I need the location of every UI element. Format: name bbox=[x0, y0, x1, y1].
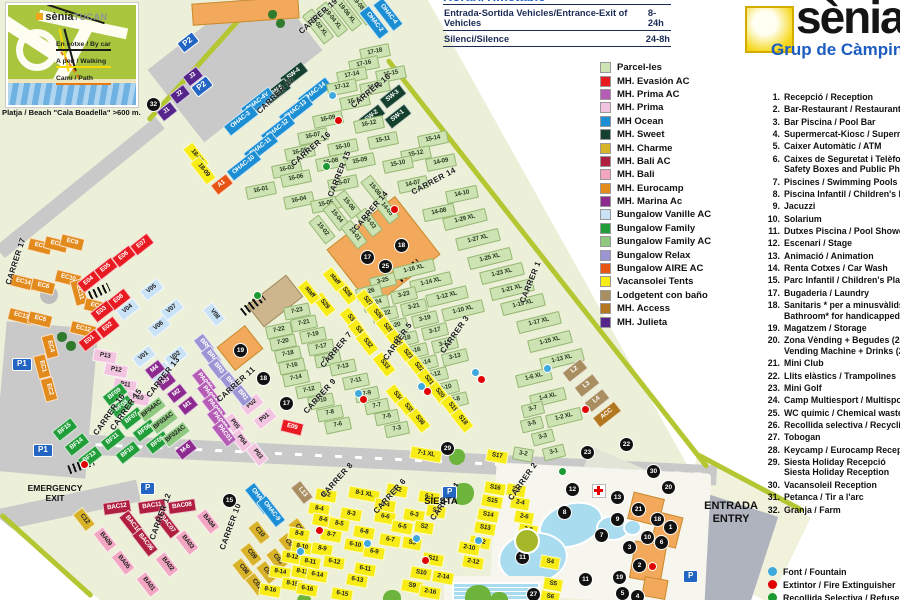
facility-marker-5: 5 bbox=[615, 586, 630, 600]
legend-swatch bbox=[600, 263, 611, 274]
map-plot-1-17-xl: 1-17 XL bbox=[516, 311, 562, 334]
legend-item: MH. Marina Ac bbox=[600, 195, 711, 208]
fountain-dot bbox=[328, 91, 337, 100]
facility-marker-2: 2 bbox=[632, 558, 647, 573]
facility-text: Recollida selectiva / Recycling bbox=[784, 420, 900, 431]
facility-number: 23. bbox=[765, 383, 780, 394]
facility-line: Animació / Animation bbox=[784, 251, 874, 262]
facility-line-2: Siesta Holiday Reception bbox=[784, 467, 889, 478]
legend-item: MH. Charme bbox=[600, 141, 711, 154]
facility-line: Escenari / Stage bbox=[784, 238, 852, 249]
area-label-entrada: ENTRADA ENTRY bbox=[694, 500, 768, 525]
map-plot-15-11: 15-11 bbox=[367, 131, 399, 150]
facility-item: 7.Piscines / Swimming Pools bbox=[765, 177, 900, 188]
legend-label: MH. Evasión AC bbox=[617, 76, 690, 87]
facility-text: Tobogan bbox=[784, 432, 820, 443]
map-symbols-legend: Font / FountainExtintor / Fire Extinguis… bbox=[768, 565, 900, 600]
tucan-logo-icon bbox=[36, 13, 43, 20]
tree-icon bbox=[383, 590, 401, 600]
facility-marker-22: 22 bbox=[619, 437, 634, 452]
legend-item: MH. Prima bbox=[600, 101, 711, 114]
facility-item: 8.Piscina Infantil / Children's Pool bbox=[765, 189, 900, 200]
tucan-logo-suffix: TUCAN bbox=[74, 12, 108, 22]
facility-number: 20. bbox=[765, 335, 780, 356]
legend-swatch bbox=[600, 129, 611, 140]
facility-text: Camp Multiesport / Multisports Field bbox=[784, 395, 900, 406]
legend-label: Parcel-les bbox=[617, 62, 662, 73]
legend-item: MH. Bali AC bbox=[600, 155, 711, 168]
facility-line: Caixer Automàtic / ATM bbox=[784, 141, 881, 152]
facility-text: Mini Golf bbox=[784, 383, 822, 394]
map-plot-6-5: 6-5 bbox=[390, 519, 414, 536]
facility-line-2: Bathroom* for handicapped people bbox=[784, 311, 900, 322]
facility-item: 24.Camp Multiesport / Multisports Field bbox=[765, 395, 900, 406]
map-plot-j2: J2 bbox=[169, 84, 191, 105]
facility-number: 21. bbox=[765, 358, 780, 369]
inset-roundabout bbox=[16, 29, 58, 71]
facility-text: Sanitaris * per a minusvàlidsBathroom* f… bbox=[784, 300, 900, 321]
facility-item: 15.Parc Infantil / Children's Playground bbox=[765, 275, 900, 286]
facility-text: Siesta Holiday RecepcióSiesta Holiday Re… bbox=[784, 457, 889, 478]
legend-item: MH. Julieta bbox=[600, 315, 711, 328]
facility-item: 23.Mini Golf bbox=[765, 383, 900, 394]
building bbox=[641, 576, 668, 600]
facility-line: Tobogan bbox=[784, 432, 820, 443]
beach-distance-caption: Platja / Beach "Cala Boadella" >600 m. bbox=[2, 108, 152, 117]
facility-text: Animació / Animation bbox=[784, 251, 874, 262]
legend-label: MH Ocean bbox=[617, 116, 663, 127]
map-plot-8-16: 8-16 bbox=[258, 582, 282, 599]
legend-label: MH. Prima bbox=[617, 102, 663, 113]
facility-number: 26. bbox=[765, 420, 780, 431]
map-plot-2-16: 2-16 bbox=[418, 584, 442, 600]
facility-text: Supermercat-Kiosc / Supermarket-Press bbox=[784, 129, 900, 140]
inset-legend-item: Camí / Path bbox=[56, 75, 111, 85]
facility-item: 21.Mini Club bbox=[765, 358, 900, 369]
facility-text: Granja / Farm bbox=[784, 505, 841, 516]
map-plot-e09: E09 bbox=[280, 419, 304, 437]
legend-swatch bbox=[600, 303, 611, 314]
facility-marker-18: 18 bbox=[394, 238, 409, 253]
facility-item: 31.Petanca / Tir a l'arc bbox=[765, 492, 900, 503]
legend-item: Bungalow Family AC bbox=[600, 235, 711, 248]
map-plot-v08: V08 bbox=[202, 302, 226, 327]
tree-icon bbox=[57, 332, 67, 342]
legend-label: Bungalow Family AC bbox=[617, 236, 711, 247]
map-plot-6-13: 6-13 bbox=[345, 572, 369, 589]
facility-marker-3: 3 bbox=[622, 540, 637, 555]
facility-line: Solarium bbox=[784, 214, 822, 225]
facility-item: 9.Jacuzzi bbox=[765, 201, 900, 212]
map-plot-ba01: BA01 bbox=[135, 571, 160, 598]
facility-marker-8: 8 bbox=[557, 505, 572, 520]
facility-line: Petanca / Tir a l'arc bbox=[784, 492, 864, 503]
map-plot-c12: C12 bbox=[72, 507, 96, 532]
inset-logo: sèniaTUCAN bbox=[8, 7, 136, 25]
facility-item: 25.WC químic / Chemical waste bbox=[765, 408, 900, 419]
facility-number: 24. bbox=[765, 395, 780, 406]
legend-label: MH. Prima AC bbox=[617, 89, 679, 100]
facility-line: Piscina Infantil / Children's Pool bbox=[784, 189, 900, 200]
fire-extinguisher-dot bbox=[359, 395, 368, 404]
symbol-label: Font / Fountain bbox=[783, 567, 847, 577]
facility-line: Caixes de Seguretat i Telèfon bbox=[784, 154, 900, 165]
facility-item: 1.Recepció / Reception bbox=[765, 92, 900, 103]
facility-item: 22.Llits elàstics / Trampolines bbox=[765, 371, 900, 382]
facility-number: 2. bbox=[765, 104, 780, 115]
facility-marker-21: 21 bbox=[631, 502, 646, 517]
facility-line-2: Vending Machine + Drinks (24h) bbox=[784, 346, 900, 357]
legend-swatch bbox=[600, 62, 611, 73]
legend-item: Bungalow Vanille AC bbox=[600, 208, 711, 221]
map-plot-s32: S32 bbox=[354, 330, 379, 357]
map-plot-3-7: 3-7 bbox=[521, 401, 545, 419]
facility-marker-7: 7 bbox=[594, 528, 609, 543]
map-plot-15-10: 15-10 bbox=[382, 155, 414, 174]
map-plot-14-10: 14-10 bbox=[445, 185, 479, 204]
facility-text: Bar Piscina / Pool Bar bbox=[784, 117, 875, 128]
symbol-label: Extintor / Fire Extinguisher bbox=[783, 580, 895, 590]
facility-number: 10. bbox=[765, 214, 780, 225]
facility-item: 4.Supermercat-Kiosc / Supermarket-Press bbox=[765, 129, 900, 140]
facility-item: 19.Magatzem / Storage bbox=[765, 323, 900, 334]
facility-item: 11.Dutxes Piscina / Pool Showers bbox=[765, 226, 900, 237]
symbol-dot bbox=[768, 580, 777, 589]
facility-number: 9. bbox=[765, 201, 780, 212]
facility-line: Renta Cotxes / Car Wash bbox=[784, 263, 888, 274]
legend-swatch bbox=[600, 116, 611, 127]
inset-legend-line bbox=[56, 49, 111, 51]
area-label-siesta: SIESTA bbox=[418, 497, 464, 508]
legend-label: Vacansolei Tents bbox=[617, 276, 693, 287]
area-label-emergency: EMERGENCY EXIT bbox=[24, 484, 86, 504]
map-plot-6-12: 6-12 bbox=[322, 554, 346, 571]
inset-legend-line bbox=[56, 83, 111, 85]
legend-item: Vacansolei Tents bbox=[600, 275, 711, 288]
inset-legend-label: A peu / Walking bbox=[56, 58, 111, 65]
map-plot-s17: S17 bbox=[485, 448, 509, 465]
map-plot-p03: P03 bbox=[245, 442, 269, 467]
facility-item: 3.Bar Piscina / Pool Bar bbox=[765, 117, 900, 128]
facility-number: 13. bbox=[765, 251, 780, 262]
facility-marker-25: 25 bbox=[378, 259, 393, 274]
map-plot-ba09: BA09 bbox=[92, 526, 117, 553]
facility-line: Mini Club bbox=[784, 358, 824, 369]
facility-item: 13.Animació / Animation bbox=[765, 251, 900, 262]
legend-swatch bbox=[600, 209, 611, 220]
pool-island bbox=[514, 528, 540, 554]
legend-label: MH. Julieta bbox=[617, 317, 667, 328]
symbol-item: Recollida Selectiva / Refuse Collection bbox=[768, 591, 900, 600]
facility-line: Bar-Restaurant / Restaurant-Bar bbox=[784, 104, 900, 115]
map-plot-ba03: BA03 bbox=[174, 529, 199, 556]
legend-item: MH. Bali bbox=[600, 168, 711, 181]
legend-swatch bbox=[600, 290, 611, 301]
first-aid-icon bbox=[592, 484, 606, 498]
facility-number: 12. bbox=[765, 238, 780, 249]
facility-number: 28. bbox=[765, 445, 780, 456]
facility-item: 5.Caixer Automàtic / ATM bbox=[765, 141, 900, 152]
facility-text: Caixer Automàtic / ATM bbox=[784, 141, 881, 152]
map-plot-1-27-xl: 1-27 XL bbox=[455, 228, 501, 251]
map-plot-2-14: 2-14 bbox=[431, 569, 455, 586]
inset-legend-item: A peu / Walking bbox=[56, 58, 111, 68]
legend-label: Lodgetent con baño bbox=[617, 290, 708, 301]
facility-line: WC químic / Chemical waste bbox=[784, 408, 900, 419]
legend-label: MH. Sweet bbox=[617, 129, 665, 140]
map-plot-c10: C10 bbox=[247, 520, 271, 545]
facility-text: Zona Vènding + Begudes (24h)Vending Mach… bbox=[784, 335, 900, 356]
facility-item: 10.Solarium bbox=[765, 214, 900, 225]
facility-line: Siesta Holiday Recepció bbox=[784, 457, 889, 468]
legend-swatch bbox=[600, 276, 611, 287]
facility-item: 27.Tobogan bbox=[765, 432, 900, 443]
map-plot-s4: S4 bbox=[539, 554, 561, 570]
tree-icon bbox=[490, 592, 508, 600]
legend-label: MH. Charme bbox=[617, 143, 672, 154]
facility-item: 30.Vacansoleil Reception bbox=[765, 480, 900, 491]
legend-item: Bungalow Relax bbox=[600, 248, 711, 261]
parking-badge-p: P bbox=[683, 570, 698, 583]
facility-marker-10: 10 bbox=[640, 530, 655, 545]
timetable-row: Silenci/Silence24-8h bbox=[443, 31, 671, 47]
facility-number: 31. bbox=[765, 492, 780, 503]
timetable-row-label: Silenci/Silence bbox=[444, 34, 509, 44]
legend-label: Bungalow Relax bbox=[617, 250, 690, 261]
facility-text: Keycamp / Eurocamp Recepció bbox=[784, 445, 900, 456]
map-plot-bf10: BF10 bbox=[115, 440, 142, 465]
facility-number: 1. bbox=[765, 92, 780, 103]
legend-label: Bungalow Family bbox=[617, 223, 695, 234]
facility-line: Zona Vènding + Begudes (24h) bbox=[784, 335, 900, 346]
facility-line: Jacuzzi bbox=[784, 201, 815, 212]
fire-extinguisher-dot bbox=[421, 556, 430, 565]
fountain-dot bbox=[412, 534, 421, 543]
facility-number: 17. bbox=[765, 288, 780, 299]
tree-icon bbox=[276, 19, 285, 28]
facility-marker-30: 30 bbox=[646, 464, 661, 479]
legend-swatch bbox=[600, 169, 611, 180]
facility-item: 12.Escenari / Stage bbox=[765, 238, 900, 249]
facility-number: 15. bbox=[765, 275, 780, 286]
symbol-item: Extintor / Fire Extinguisher bbox=[768, 578, 900, 591]
timetable: Horari/Timetable Entrada-Sortida Vehicle… bbox=[443, 0, 671, 47]
map-plot-16-01: 16-01 bbox=[245, 181, 277, 200]
facility-line: Recollida selectiva / Recycling bbox=[784, 420, 900, 431]
facility-number: 22. bbox=[765, 371, 780, 382]
symbol-dot bbox=[768, 567, 777, 576]
facility-item: 2.Bar-Restaurant / Restaurant-Bar bbox=[765, 104, 900, 115]
map-plot-6-15: 6-15 bbox=[330, 586, 354, 600]
facility-item: 32.Granja / Farm bbox=[765, 505, 900, 516]
facility-number: 8. bbox=[765, 189, 780, 200]
facility-item: 17.Bugaderia / Laundry bbox=[765, 288, 900, 299]
fountain-dot bbox=[296, 547, 305, 556]
facility-line: Bar Piscina / Pool Bar bbox=[784, 117, 875, 128]
inset-legend-item: En cotxe / By car bbox=[56, 41, 111, 51]
map-plot-bac08: BAC08 bbox=[167, 498, 197, 515]
fire-extinguisher-dot bbox=[80, 460, 89, 469]
inset-legend-label: En cotxe / By car bbox=[56, 41, 111, 48]
facility-item: 18.Sanitaris * per a minusvàlidsBathroom… bbox=[765, 300, 900, 321]
facility-item: 20.Zona Vènding + Begudes (24h)Vending M… bbox=[765, 335, 900, 356]
facility-marker-9: 9 bbox=[610, 512, 625, 527]
legend-item: MH Ocean bbox=[600, 115, 711, 128]
tree-icon bbox=[465, 585, 491, 600]
legend-item: Parcel-les bbox=[600, 61, 711, 74]
brand-name: sènia bbox=[796, 0, 900, 44]
legend-item: MH. Eurocamp bbox=[600, 182, 711, 195]
facility-text: Escenari / Stage bbox=[784, 238, 852, 249]
facility-text: Parc Infantil / Children's Playground bbox=[784, 275, 900, 286]
symbol-label: Recollida Selectiva / Refuse Collection bbox=[783, 593, 900, 600]
facility-number: 32. bbox=[765, 505, 780, 516]
facility-item: 6.Caixes de Seguretat i TelèfonSafety Bo… bbox=[765, 154, 900, 175]
legend-label: MH. Bali bbox=[617, 169, 654, 180]
facility-line: Vacansoleil Reception bbox=[784, 480, 877, 491]
map-plot-ec2: EC2 bbox=[40, 376, 59, 403]
facility-number: 6. bbox=[765, 154, 780, 175]
facility-line: Piscines / Swimming Pools bbox=[784, 177, 897, 188]
map-plot-ba04: BA04 bbox=[195, 508, 220, 535]
legend-label: MH. Bali AC bbox=[617, 156, 670, 167]
facility-number: 27. bbox=[765, 432, 780, 443]
facility-number: 4. bbox=[765, 129, 780, 140]
fountain-dot bbox=[363, 539, 372, 548]
street-label: CARRER 10 bbox=[218, 502, 243, 551]
legend-label: MH. Access bbox=[617, 303, 670, 314]
legend-item: Lodgetent con baño bbox=[600, 289, 711, 302]
brand-subtitle: Grup de Càmpings bbox=[771, 40, 900, 60]
facility-text: Vacansoleil Reception bbox=[784, 480, 877, 491]
facility-item: 26.Recollida selectiva / Recycling bbox=[765, 420, 900, 431]
facility-number: 25. bbox=[765, 408, 780, 419]
legend-item: MH. Sweet bbox=[600, 128, 711, 141]
fire-extinguisher-dot bbox=[390, 205, 399, 214]
facility-number: 14. bbox=[765, 263, 780, 274]
fountain-dot bbox=[474, 536, 483, 545]
facility-text: Caixes de Seguretat i TelèfonSafety Boxe… bbox=[784, 154, 900, 175]
facility-line: Parc Infantil / Children's Playground bbox=[784, 275, 900, 286]
facility-text: Bar-Restaurant / Restaurant-Bar bbox=[784, 104, 900, 115]
map-plot-p01: P01 bbox=[252, 407, 277, 431]
timetable-row-value: 24-8h bbox=[646, 34, 670, 44]
facilities-list: 1.Recepció / Reception2.Bar-Restaurant /… bbox=[765, 92, 900, 517]
fire-extinguisher-dot bbox=[477, 375, 486, 384]
legend-label: Bungalow Vanille AC bbox=[617, 209, 711, 220]
map-plot-3-1: 3-1 bbox=[542, 444, 566, 462]
facility-text: Mini Club bbox=[784, 358, 824, 369]
facility-line: Magatzem / Storage bbox=[784, 323, 867, 334]
map-plot-ec6: EC6 bbox=[30, 277, 56, 295]
parking-badge-p: P bbox=[140, 482, 155, 495]
facility-marker-15: 15 bbox=[222, 493, 237, 508]
timetable-row: Entrada-Sortida Vehicles/Entrance-Exit o… bbox=[443, 4, 671, 31]
facility-number: 11. bbox=[765, 226, 780, 237]
recycling-dot bbox=[253, 291, 262, 300]
recycling-dot bbox=[558, 467, 567, 476]
facility-number: 3. bbox=[765, 117, 780, 128]
legend-swatch bbox=[600, 156, 611, 167]
legend-item: Bungalow Family bbox=[600, 222, 711, 235]
facility-item: 28.Keycamp / Eurocamp Recepció bbox=[765, 445, 900, 456]
symbol-item: Font / Fountain bbox=[768, 565, 900, 578]
accommodation-legend: Parcel-lesMH. Evasión ACMH. Prima ACMH. … bbox=[600, 61, 711, 329]
timetable-row-value: 8-24h bbox=[648, 8, 670, 28]
parking-badge-p1: P1 bbox=[12, 358, 32, 371]
fire-extinguisher-dot bbox=[334, 116, 343, 125]
facility-marker-19: 19 bbox=[612, 570, 627, 585]
map-plot-3-3: 3-3 bbox=[531, 429, 555, 447]
symbol-dot bbox=[768, 593, 777, 600]
facility-marker-27: 27 bbox=[526, 587, 541, 600]
facility-item: 14.Renta Cotxes / Car Wash bbox=[765, 263, 900, 274]
map-plot-1-15-xl: 1-15 XL bbox=[527, 330, 573, 353]
map-plot-m-6: M-6 bbox=[174, 438, 198, 461]
facility-line: Camp Multiesport / Multisports Field bbox=[784, 395, 900, 406]
facility-text: Solarium bbox=[784, 214, 822, 225]
facility-marker-17: 17 bbox=[279, 396, 294, 411]
map-plot-s18: S18 bbox=[449, 407, 474, 434]
fire-extinguisher-dot bbox=[581, 405, 590, 414]
map-plot-ba02: BA02 bbox=[154, 551, 179, 578]
fire-extinguisher-dot bbox=[423, 387, 432, 396]
legend-label: MH. Eurocamp bbox=[617, 183, 684, 194]
recycling-dot bbox=[322, 162, 331, 171]
legend-swatch bbox=[600, 317, 611, 328]
facility-text: Dutxes Piscina / Pool Showers bbox=[784, 226, 900, 237]
facility-marker-20: 20 bbox=[661, 480, 676, 495]
facility-text: Jacuzzi bbox=[784, 201, 815, 212]
facility-marker-19: 19 bbox=[233, 343, 248, 358]
facility-marker-12: 12 bbox=[565, 482, 580, 497]
tucan-logo-name: sènia bbox=[45, 11, 73, 23]
legend-item: Bungalow AIRE AC bbox=[600, 262, 711, 275]
map-plot-1-2-xl: 1-2 XL bbox=[545, 407, 583, 428]
legend-swatch bbox=[600, 183, 611, 194]
facility-line-2: Safety Boxes and Public Phone bbox=[784, 164, 900, 175]
facility-text: Piscines / Swimming Pools bbox=[784, 177, 897, 188]
map-plot-2-12: 2-12 bbox=[461, 554, 485, 571]
facility-marker-29: 29 bbox=[440, 441, 455, 456]
legend-swatch bbox=[600, 250, 611, 261]
fire-extinguisher-dot bbox=[648, 562, 657, 571]
map-plot-v05: V05 bbox=[139, 278, 164, 302]
facility-line: Mini Golf bbox=[784, 383, 822, 394]
facility-text: Petanca / Tir a l'arc bbox=[784, 492, 864, 503]
facility-line: Recepció / Reception bbox=[784, 92, 873, 103]
legend-swatch bbox=[600, 89, 611, 100]
facility-line: Bugaderia / Laundry bbox=[784, 288, 869, 299]
facility-text: Renta Cotxes / Car Wash bbox=[784, 263, 888, 274]
tree-icon bbox=[66, 341, 76, 351]
facility-number: 19. bbox=[765, 323, 780, 334]
map-plot-s36: S36 bbox=[406, 407, 431, 434]
facility-number: 7. bbox=[765, 177, 780, 188]
timetable-rows: Entrada-Sortida Vehicles/Entrance-Exit o… bbox=[443, 4, 671, 47]
inset-legend-line bbox=[56, 66, 111, 68]
map-plot-ba05: BA05 bbox=[110, 549, 135, 576]
legend-swatch bbox=[600, 236, 611, 247]
facility-line: Granja / Farm bbox=[784, 505, 841, 516]
inset-legend-label: Camí / Path bbox=[56, 75, 111, 82]
facility-text: Bugaderia / Laundry bbox=[784, 288, 869, 299]
legend-swatch bbox=[600, 76, 611, 87]
facility-marker-17: 17 bbox=[360, 250, 375, 265]
facility-text: Magatzem / Storage bbox=[784, 323, 867, 334]
facility-line: Supermercat-Kiosc / Supermarket-Press bbox=[784, 129, 900, 140]
facility-line: Sanitaris * per a minusvàlids bbox=[784, 300, 900, 311]
